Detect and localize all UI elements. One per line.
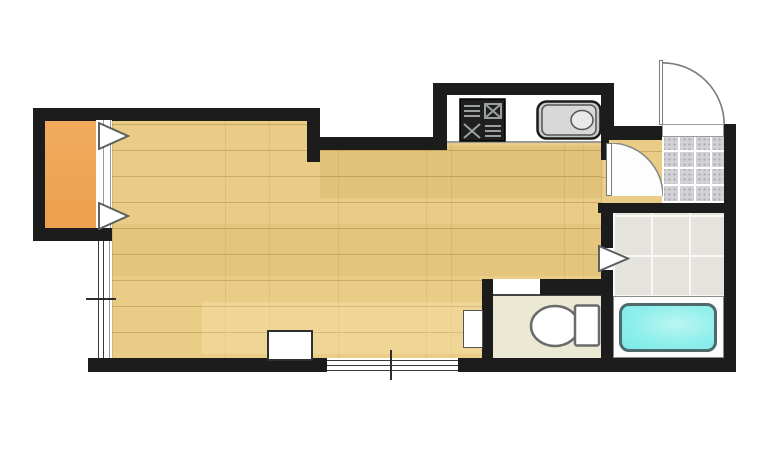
wall-kitchen-top	[433, 83, 614, 95]
wall-entry-inner	[601, 126, 662, 140]
wall-washroom-left-lower	[601, 270, 613, 358]
entry-door-swing-icon	[662, 62, 725, 125]
wall-top-mid	[320, 137, 447, 150]
wall-outer-right	[724, 124, 736, 372]
wall-washroom-left-upper	[601, 213, 613, 248]
toilet-icon	[529, 302, 601, 349]
floor-plan	[0, 0, 780, 450]
entry-threshold	[662, 124, 724, 137]
genkan-tile-floor	[662, 137, 724, 203]
toilet-door-opening	[493, 280, 540, 294]
window-bottom-tick	[390, 350, 392, 380]
washroom-arrow-icon	[598, 245, 630, 272]
fixture-box-toilet-side	[463, 310, 483, 348]
wood-shade-patch	[320, 146, 601, 198]
furniture-box-bottom	[267, 330, 313, 361]
window-bottom	[327, 359, 458, 372]
interior-door-swing-icon	[610, 143, 663, 196]
stove-grill-icon	[459, 98, 506, 142]
bathtub-icon	[619, 303, 717, 352]
wall-genkan-bottom	[598, 203, 736, 213]
window-left-tick	[86, 298, 116, 300]
wall-bottom-right	[458, 358, 736, 372]
wood-light-patch	[202, 302, 482, 354]
closet-floor	[45, 120, 96, 228]
closet-arrow-bottom-icon	[98, 202, 130, 230]
interior-door-leaf	[606, 143, 612, 196]
wall-closet-left	[33, 108, 45, 241]
kitchen-sink-icon	[536, 100, 602, 140]
wall-step-stub	[307, 108, 320, 162]
wood-shade-patch	[112, 224, 601, 276]
closet-arrow-top-icon	[98, 122, 130, 150]
wall-top-left	[33, 108, 320, 121]
wall-toilet-top	[540, 279, 601, 295]
